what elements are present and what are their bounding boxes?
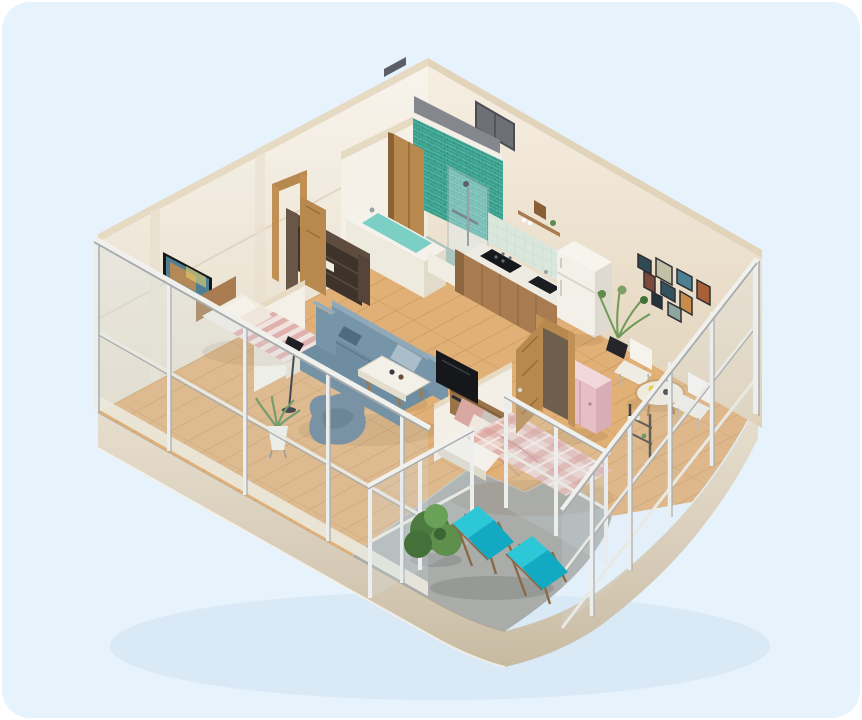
faucet (370, 208, 375, 213)
cup (389, 369, 394, 374)
wall-pilaster (255, 151, 265, 327)
floor-plan-render (0, 0, 862, 720)
cup (528, 221, 532, 225)
herb-pot (550, 220, 556, 226)
door-handle (518, 388, 522, 392)
shower-head (463, 181, 469, 187)
sink-faucet (544, 270, 548, 274)
cup (398, 374, 403, 379)
cup (522, 218, 526, 222)
apartment-isometric-scene (0, 0, 862, 720)
